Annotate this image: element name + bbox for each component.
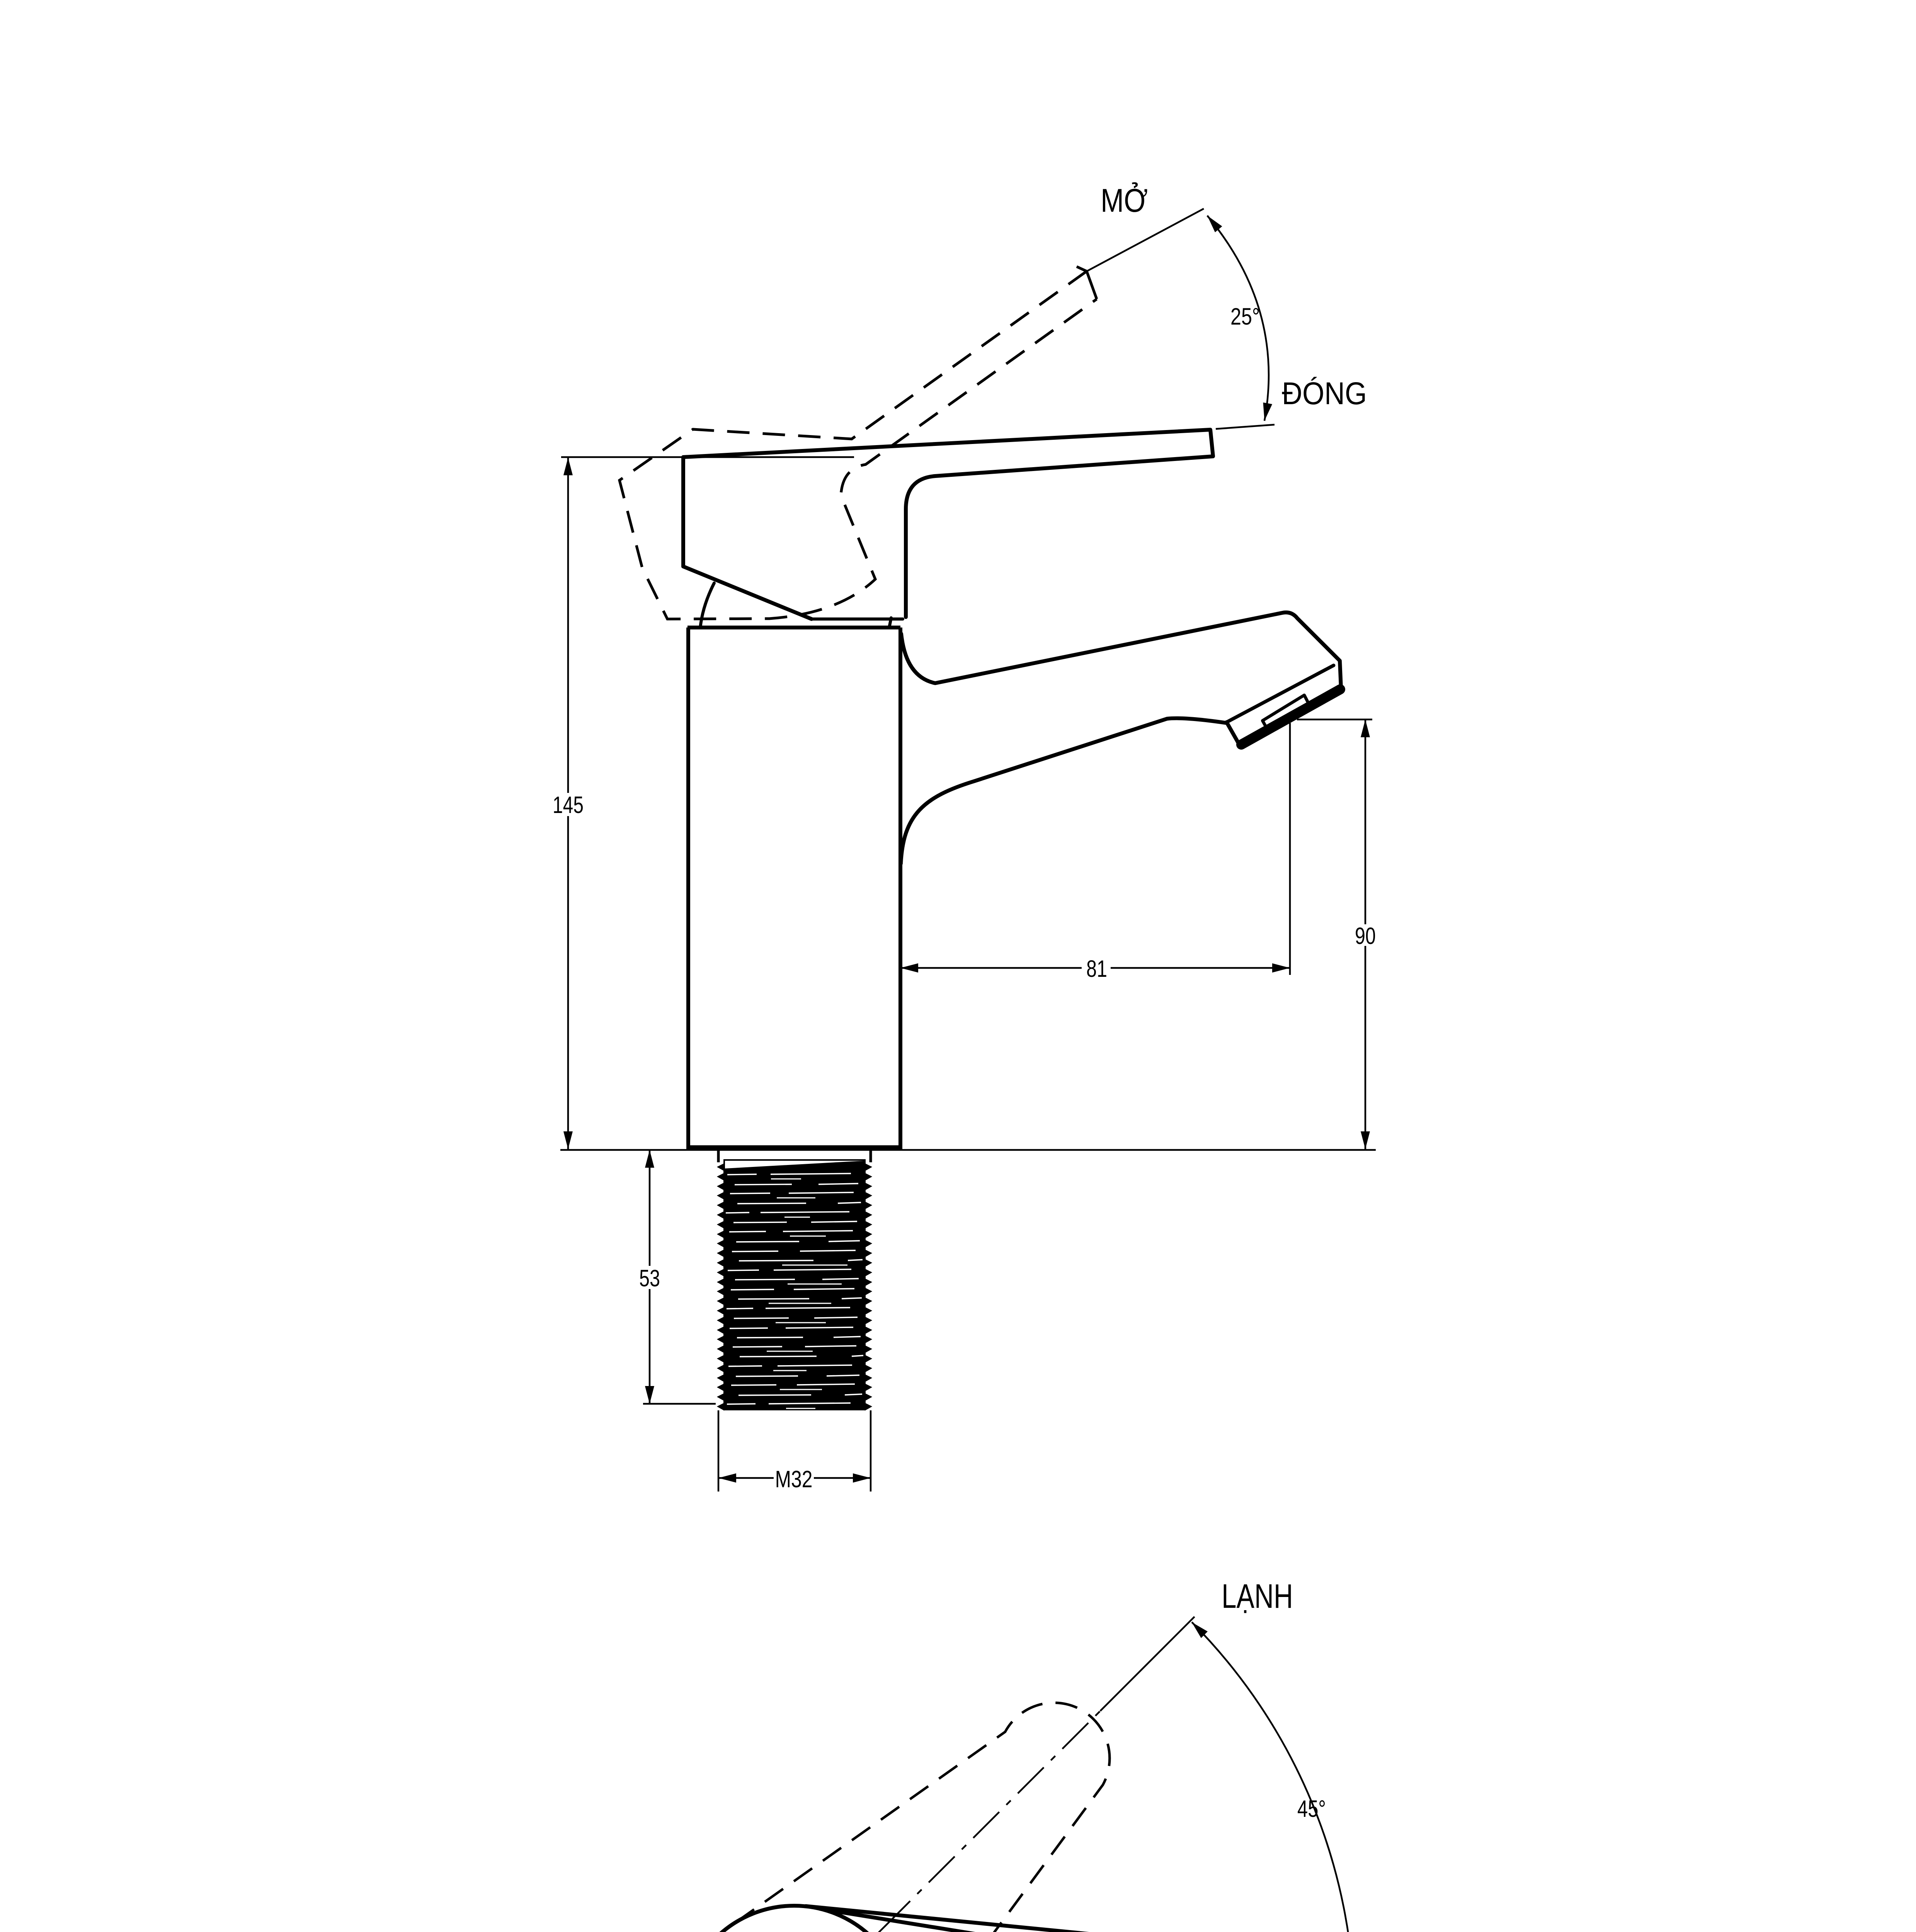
svg-text:LẠNH: LẠNH	[1222, 1577, 1293, 1615]
svg-text:M32: M32	[775, 1466, 813, 1492]
svg-text:MỞ: MỞ	[1101, 182, 1148, 219]
svg-text:145: 145	[553, 792, 584, 818]
svg-text:81: 81	[1086, 956, 1107, 982]
svg-text:25°: 25°	[1230, 303, 1260, 330]
svg-text:53: 53	[639, 1265, 660, 1291]
svg-text:ĐÓNG: ĐÓNG	[1282, 376, 1367, 411]
svg-text:45°: 45°	[1297, 1796, 1326, 1822]
svg-text:90: 90	[1355, 923, 1376, 949]
